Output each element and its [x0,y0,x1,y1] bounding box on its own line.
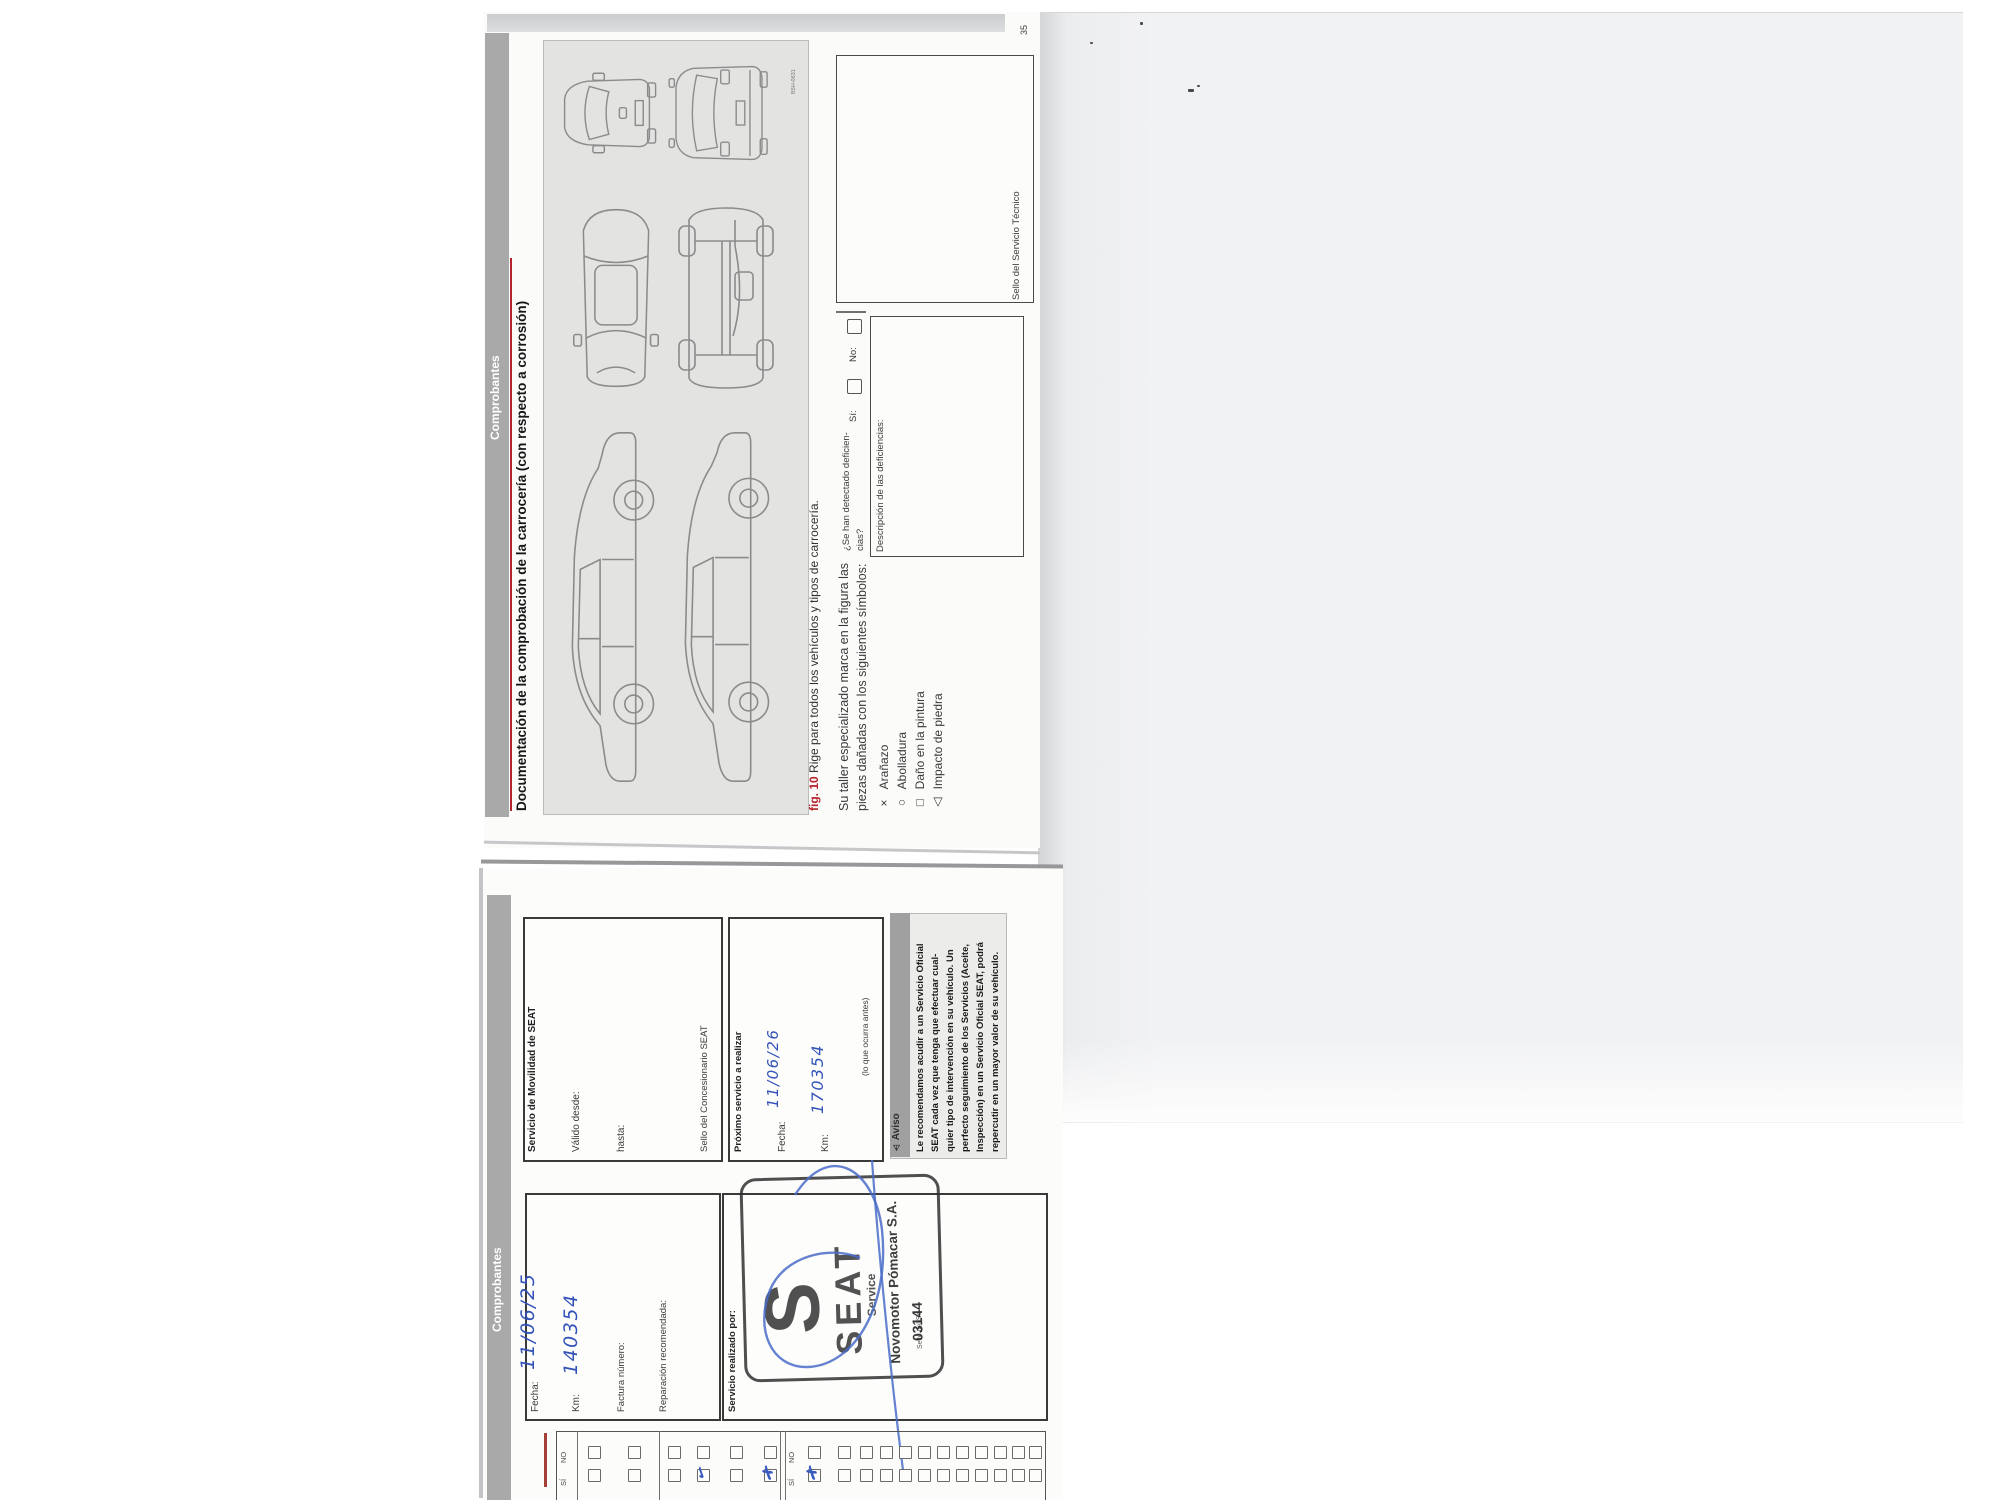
title-rule [510,258,512,811]
checkbox [899,1469,912,1482]
next-service-km-value: 170354 [810,992,827,1114]
checklist-si-label-2: SÍ [788,1466,796,1486]
dealer-stamp-label: Sello del Concesionario SEAT [700,972,710,1152]
checkbox [975,1446,988,1459]
scratch-symbol-label: Arañazo [877,745,891,790]
checkbox [697,1446,710,1459]
next-service-note: (lo que ocurra antes) [861,986,870,1076]
page-number: 35 [1020,13,1029,35]
symbol-item-scratch: × Arañazo [878,600,891,810]
notice-line: Inspección) en un Servicio Oficial SEAT,… [973,918,988,1152]
checkbox [1012,1446,1025,1459]
tab-comprobantes: Comprobantes [489,358,502,440]
valid-from-label: Válido desde: [572,1088,583,1152]
paint-damage-symbol-label: Daño en la pintura [913,691,927,789]
invoice-number-label: Factura número: [617,1336,627,1412]
deficiencies-no-checkbox [847,319,862,334]
scanned-service-booklet: Comprobantes Documentación de la comprob… [0,0,2000,1500]
record-km-value: 140354 [562,1235,582,1375]
car-rear-view [656,56,782,170]
ink-speck [1140,22,1143,25]
checkbox [838,1446,851,1459]
checkbox [730,1469,743,1482]
page-title: Documentación de la comprobación de la c… [515,262,529,811]
checklist-sep-4 [785,1431,786,1500]
checkbox [860,1446,873,1459]
record-date-label: Fecha: [531,1376,542,1412]
car-front-view [551,56,663,170]
checkbox [899,1446,912,1459]
deficiencies-description-box [870,316,1024,557]
car-underside-view [668,196,784,400]
checklist-accent-line [544,1433,547,1487]
checkbox [956,1469,969,1482]
symbol-item-stone: △ Impacto de piedra [932,600,945,810]
checkbox [880,1469,893,1482]
figure-caption-text: Rige para todos los vehículos y tipos de… [807,500,821,773]
deficiencies-yes-label: Sí: [849,398,859,422]
checkbox [730,1446,743,1459]
dent-symbol-icon: ○ [895,796,909,810]
checkbox [764,1446,777,1459]
ink-speck [1197,85,1200,87]
checklist-no-label-1: NO [560,1443,568,1463]
checkbox [628,1469,641,1482]
checkbox [668,1446,681,1459]
next-service-date-value: 11/06/26 [766,986,782,1108]
checkbox [918,1446,931,1459]
scratch-symbol-icon: × [877,796,891,810]
car-side-view-right [666,414,780,800]
checkbox [860,1469,873,1482]
deficiencies-question-line1: ¿Se han detectado deficien- [842,423,852,551]
technical-stamp-box [836,55,1034,303]
checkbox [838,1469,851,1482]
car-side-view-left [556,414,660,800]
notice-body: Le recomendamos acudir a un Servicio Ofi… [913,918,1003,1152]
checkbox [937,1469,950,1482]
record-date-value: 11/06/25 [519,1202,539,1370]
checkbox [937,1446,950,1459]
deficiencies-divider [836,311,866,313]
notice-line: perfecto seguimiento de los Servicios (A… [958,918,973,1152]
checkbox [918,1469,931,1482]
checkbox [956,1446,969,1459]
ink-speck [1090,42,1093,44]
tab-comprobantes-voucher: Comprobantes [491,1250,504,1332]
checkbox [1029,1446,1042,1459]
voucher-left-edge-shadow [479,868,483,1498]
checkbox [1012,1469,1025,1482]
notice-line: quier tipo de intervención en su vehícul… [943,918,958,1152]
voucher-tab-bar [487,895,511,1500]
checkbox [1029,1469,1042,1482]
checkbox [588,1469,601,1482]
checklist-sep-3 [780,1431,781,1500]
figure-caption-label: fig. 10 [807,776,821,811]
checklist-si-label-1: SÍ [560,1466,568,1486]
deficiencies-no-label: No: [849,338,859,362]
figure-caption: fig. 10 Rige para todos los vehículos y … [808,415,821,811]
stone-impact-symbol-icon: △ [931,796,945,810]
symbol-item-paint: □ Daño en la pintura [914,600,927,810]
record-km-label: Km: [572,1386,583,1412]
notice-line: repercutir en un mayor valor de su vehíc… [988,918,1003,1152]
car-top-view [566,198,666,398]
checklist-no-label-2: NO [788,1443,796,1463]
blank-facing-page [1038,12,1963,1123]
checkbox [808,1446,821,1459]
notice-line: SEAT cada vez que tenga que efectuar cua… [928,918,943,1152]
checkbox [668,1469,681,1482]
deficiencies-yes-checkbox [847,379,862,394]
deficiencies-question-line2: cias? [856,519,866,551]
notice-line: Le recomendamos acudir a un Servicio Ofi… [913,918,928,1152]
blank-page-bottom-fade [1038,1040,1963,1122]
valid-until-label: hasta: [617,1120,628,1152]
stone-impact-symbol-label: Impacto de piedra [931,693,945,789]
symbol-item-dent: ○ Abolladura [896,600,909,810]
deficiencies-description-label: Descripción de las deficiencias: [876,416,886,552]
dent-symbol-label: Abolladura [895,732,909,789]
checkbox [975,1469,988,1482]
page35-top-edge-shadow [487,14,1005,32]
checklist-sep-2 [659,1431,660,1500]
paint-damage-symbol-icon: □ [913,796,927,810]
checkbox [588,1446,601,1459]
checkbox [994,1446,1007,1459]
ink-speck [1188,89,1194,92]
checkbox [994,1469,1007,1482]
checkbox [628,1446,641,1459]
checklist-frame [556,1431,1046,1500]
checkbox [880,1446,893,1459]
intro-line2: piezas dañadas con los siguientes símbol… [856,442,869,811]
checklist-sep-1 [577,1431,578,1500]
recommended-repair-label: Reparación recomendada: [659,1298,669,1412]
mobility-box-title: Servicio de Movilidad de SEAT [528,1018,539,1152]
figure-id-code: B5H-0631 [792,54,798,94]
technical-stamp-label: Sello del Servicio Técnico [1012,124,1022,300]
